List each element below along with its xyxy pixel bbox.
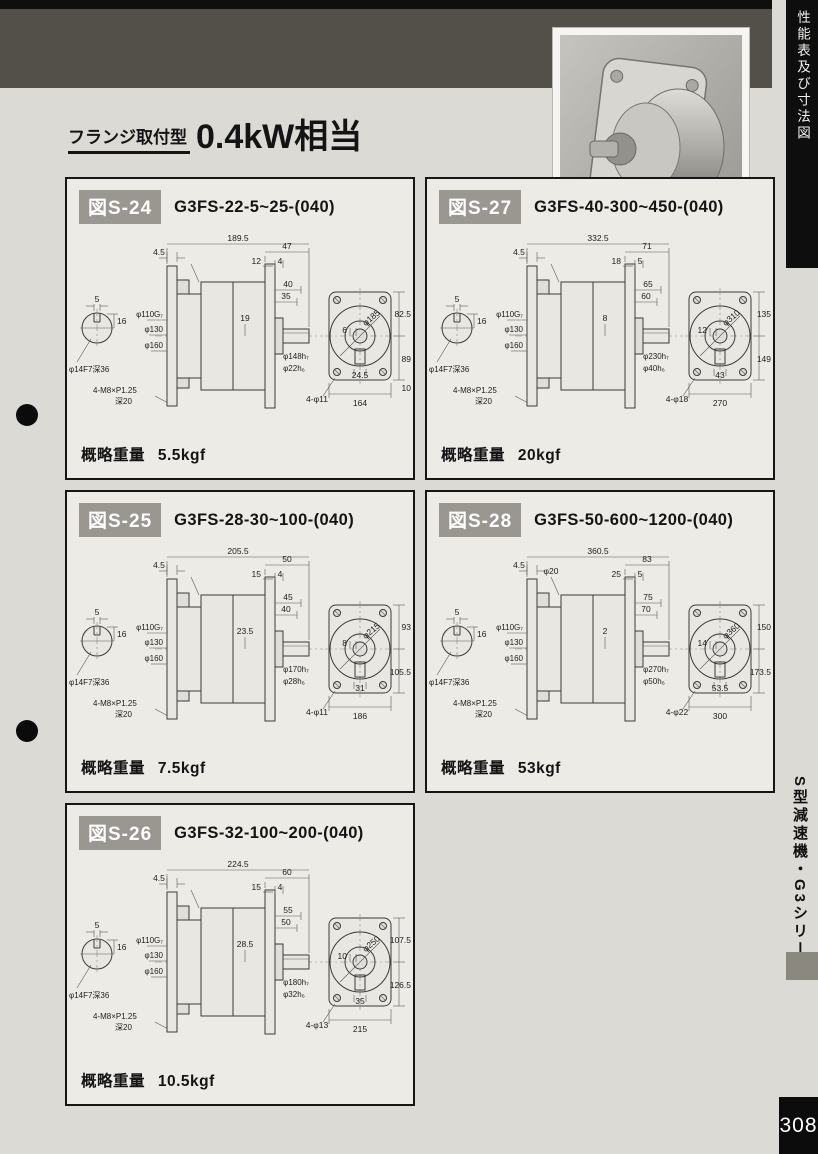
weight-label: 概略重量 bbox=[81, 1073, 145, 1090]
figure-header: 図S-24 G3FS-22-5~25-(040) bbox=[79, 190, 413, 224]
dim-overall-length: 360.5 bbox=[587, 546, 609, 556]
figure-box: 図S-25 G3FS-28-30~100-(040) 5 16 bbox=[65, 490, 415, 793]
dim-top-secondary: 12 bbox=[252, 256, 262, 266]
dim-output-length-1: 55 bbox=[283, 905, 293, 915]
punch-hole bbox=[16, 720, 38, 742]
dim-output-length-1: 40 bbox=[283, 279, 293, 289]
dim-output-spigot-diameter: φ170h₇ bbox=[283, 665, 309, 674]
dim-key-width: 5 bbox=[455, 294, 460, 304]
dim-front-key: 12 bbox=[698, 325, 708, 335]
figure-id-badge: 図S-26 bbox=[79, 816, 161, 850]
dim-key-width: 5 bbox=[455, 607, 460, 617]
side-tab-performance-dimensions: 性能表及び寸法図 bbox=[786, 0, 818, 268]
figure-model-code: G3FS-50-600~1200-(040) bbox=[534, 511, 733, 530]
dim-shaft-bore-note: φ14F7深36 bbox=[429, 365, 470, 374]
dim-bolt-note-depth: 深20 bbox=[115, 1023, 132, 1032]
dim-output-length-1: 75 bbox=[643, 592, 653, 602]
figure-model-code: G3FS-40-300~450-(040) bbox=[534, 198, 724, 217]
dim-bolt-note-depth: 深20 bbox=[475, 397, 492, 406]
dim-front-upper-height: 82.5 bbox=[394, 309, 411, 319]
dim-output-length-2: 40 bbox=[281, 604, 291, 614]
dim-output-spigot-diameter: φ148h₇ bbox=[283, 352, 309, 361]
catalog-page: { "page": { "side_tab": "性能表及び寸法図", "sid… bbox=[0, 0, 818, 1154]
dim-bolt-note: 4-M8×P1.25 bbox=[93, 699, 137, 708]
dim-body-key: 19 bbox=[240, 313, 250, 323]
figure-weight: 概略重量 53kgf bbox=[441, 756, 561, 778]
figure-id-badge: 図S-28 bbox=[439, 503, 521, 537]
dim-front-lower-height: 126.5 bbox=[390, 980, 412, 990]
front-view: φ360 14 53.5 150 173.5 300 4-φ22 bbox=[666, 601, 772, 721]
figure-id-badge: 図S-25 bbox=[79, 503, 161, 537]
dim-output-shaft-diameter: φ32h₆ bbox=[283, 990, 305, 999]
dim-output-length-1: 65 bbox=[643, 279, 653, 289]
dim-front-lower-height: 89 bbox=[402, 354, 412, 364]
dim-bolt-note: 4-M8×P1.25 bbox=[453, 699, 497, 708]
title-mount-type: フランジ取付型 bbox=[68, 123, 190, 154]
front-view: φ250 10 35 107.5 126.5 215 4-φ13 bbox=[306, 914, 412, 1034]
dim-flange-thickness: 4.5 bbox=[513, 560, 525, 570]
dim-key-height: 16 bbox=[477, 629, 487, 639]
dim-flange-thickness: 4.5 bbox=[153, 873, 165, 883]
dim-top-tertiary: 4 bbox=[278, 256, 283, 266]
weight-label: 概略重量 bbox=[81, 760, 145, 777]
dim-output-shaft-diameter: φ50h₆ bbox=[643, 677, 665, 686]
dim-overall-length: 189.5 bbox=[227, 233, 249, 243]
side-view: 205.5 4.5 50 15 4 φ110G₇ φ130 φ160 23.5 … bbox=[136, 546, 323, 721]
dim-flange-outer-diameter: φ160 bbox=[504, 341, 523, 350]
dim-output-shaft-diameter: φ40h₆ bbox=[643, 364, 665, 373]
dim-front-boss: 24.5 bbox=[352, 370, 369, 380]
front-view: φ185 6 24.5 82.5 89 10 164 4-φ11 bbox=[306, 288, 411, 408]
dimension-drawing: 5 16 φ14F7深36 4-M8×P1.25 深20 bbox=[67, 854, 413, 1066]
dim-flange-thickness: 4.5 bbox=[153, 560, 165, 570]
figure-weight: 概略重量 5.5kgf bbox=[81, 443, 206, 465]
dim-flange-outer-diameter: φ160 bbox=[504, 654, 523, 663]
dim-shaft-bore-note: φ14F7深36 bbox=[69, 365, 110, 374]
dim-key-width: 5 bbox=[95, 607, 100, 617]
side-view: 189.5 4.5 47 12 4 φ110G₇ φ130 φ160 19 40… bbox=[136, 233, 323, 408]
dim-shaft-bore-note: φ14F7深36 bbox=[69, 678, 110, 687]
dim-extra-fitting: φ20 bbox=[544, 566, 559, 576]
figure-header: 図S-28 G3FS-50-600~1200-(040) bbox=[439, 503, 773, 537]
figure-header: 図S-26 G3FS-32-100~200-(040) bbox=[79, 816, 413, 850]
dim-shaft-bore-note: φ14F7深36 bbox=[429, 678, 470, 687]
dim-front-lower-height: 149 bbox=[757, 354, 771, 364]
dim-bolt-circle-diameter: φ130 bbox=[144, 951, 163, 960]
dim-front-key: 10 bbox=[338, 951, 348, 961]
punch-hole bbox=[16, 404, 38, 426]
dim-output-length-2: 70 bbox=[641, 604, 651, 614]
dim-mounting-holes: 4-φ13 bbox=[306, 1020, 329, 1030]
dim-output-length-2: 35 bbox=[281, 291, 291, 301]
dim-body-key: 23.5 bbox=[237, 626, 254, 636]
dim-top-tertiary: 5 bbox=[638, 256, 643, 266]
dim-top-secondary: 15 bbox=[252, 569, 262, 579]
dim-front-upper-height: 93 bbox=[402, 622, 412, 632]
dim-front-key: 8 bbox=[342, 638, 347, 648]
dim-bolt-note: 4-M8×P1.25 bbox=[453, 386, 497, 395]
dim-spigot-diameter: φ110G₇ bbox=[496, 310, 523, 319]
dim-body-key: 8 bbox=[603, 313, 608, 323]
dim-front-key: 14 bbox=[698, 638, 708, 648]
figure-weight: 概略重量 20kgf bbox=[441, 443, 561, 465]
dim-output-shaft-diameter: φ28h₆ bbox=[283, 677, 305, 686]
dim-output-section: 60 bbox=[282, 867, 292, 877]
dim-front-key: 6 bbox=[342, 325, 347, 335]
dim-front-upper-height: 135 bbox=[757, 309, 771, 319]
dim-body-key: 28.5 bbox=[237, 939, 254, 949]
figure-id-badge: 図S-24 bbox=[79, 190, 161, 224]
dim-key-height: 16 bbox=[117, 629, 127, 639]
dim-mounting-holes: 4-φ22 bbox=[666, 707, 689, 717]
dim-front-upper-height: 107.5 bbox=[390, 935, 412, 945]
weight-label: 概略重量 bbox=[81, 447, 145, 464]
dim-bolt-note-depth: 深20 bbox=[115, 397, 132, 406]
dim-top-secondary: 15 bbox=[252, 882, 262, 892]
weight-value: 7.5kgf bbox=[158, 760, 206, 777]
dimension-drawing: 5 16 φ14F7深36 4-M8×P1.25 深20 bbox=[427, 541, 773, 753]
dim-front-width: 164 bbox=[353, 398, 367, 408]
side-accent-bar bbox=[786, 952, 818, 980]
weight-value: 53kgf bbox=[518, 760, 561, 777]
title-power-rating: 0.4kW相当 bbox=[196, 120, 362, 154]
dim-spigot-diameter: φ110G₇ bbox=[496, 623, 523, 632]
dim-shaft-bore-note: φ14F7深36 bbox=[69, 991, 110, 1000]
dim-output-spigot-diameter: φ230h₇ bbox=[643, 352, 669, 361]
dim-bolt-note: 4-M8×P1.25 bbox=[93, 386, 137, 395]
front-view: φ310 12 43 135 149 270 4-φ18 bbox=[666, 288, 772, 408]
dim-top-tertiary: 4 bbox=[278, 882, 283, 892]
front-view: φ215 8 31 93 105.5 186 4-φ11 bbox=[306, 601, 411, 721]
dim-bolt-circle-diameter: φ130 bbox=[504, 325, 523, 334]
dim-mounting-holes: 4-φ11 bbox=[306, 707, 328, 717]
dim-key-width: 5 bbox=[95, 920, 100, 930]
side-tab-label: 性能表及び寸法図 bbox=[792, 0, 812, 268]
dim-key-width: 5 bbox=[95, 294, 100, 304]
dim-top-secondary: 25 bbox=[612, 569, 622, 579]
dimension-drawing: 5 16 φ14F7深36 4-M8×P1.25 深20 bbox=[67, 541, 413, 753]
dim-bolt-note-depth: 深20 bbox=[115, 710, 132, 719]
dim-output-section: 71 bbox=[642, 241, 652, 251]
dim-flange-thickness: 4.5 bbox=[153, 247, 165, 257]
dim-front-width: 186 bbox=[353, 711, 367, 721]
weight-label: 概略重量 bbox=[441, 447, 505, 464]
figure-model-code: G3FS-32-100~200-(040) bbox=[174, 824, 364, 843]
side-view: 224.5 4.5 60 15 4 φ110G₇ φ130 φ160 28.5 … bbox=[136, 859, 323, 1034]
dim-spigot-diameter: φ110G₇ bbox=[136, 310, 163, 319]
dim-key-height: 16 bbox=[117, 942, 127, 952]
dim-bolt-circle-diameter: φ130 bbox=[504, 638, 523, 647]
dim-flange-thickness: 4.5 bbox=[513, 247, 525, 257]
dim-spigot-diameter: φ110G₇ bbox=[136, 623, 163, 632]
dimension-drawing: 5 16 φ14F7深36 4-M8×P1.25 深20 bbox=[427, 228, 773, 440]
dim-front-boss: 31 bbox=[355, 683, 365, 693]
dim-output-length-1: 45 bbox=[283, 592, 293, 602]
weight-value: 5.5kgf bbox=[158, 447, 206, 464]
figure-weight: 概略重量 10.5kgf bbox=[81, 1069, 215, 1091]
side-series-label: S型減速機・G3シリーズ bbox=[789, 776, 810, 977]
dim-front-width: 215 bbox=[353, 1024, 367, 1034]
dim-top-tertiary: 5 bbox=[638, 569, 643, 579]
weight-label: 概略重量 bbox=[441, 760, 505, 777]
dim-output-section: 83 bbox=[642, 554, 652, 564]
dim-front-lower-height: 105.5 bbox=[390, 667, 412, 677]
dim-bolt-circle-diameter: φ130 bbox=[144, 325, 163, 334]
figure-id-badge: 図S-27 bbox=[439, 190, 521, 224]
dim-bolt-note-depth: 深20 bbox=[475, 710, 492, 719]
figure-box: 図S-24 G3FS-22-5~25-(040) 5 16 bbox=[65, 177, 415, 480]
dim-output-length-2: 60 bbox=[641, 291, 651, 301]
figure-box: 図S-27 G3FS-40-300~450-(040) 5 16 bbox=[425, 177, 775, 480]
dim-bolt-note: 4-M8×P1.25 bbox=[93, 1012, 137, 1021]
dim-key-height: 16 bbox=[117, 316, 127, 326]
dim-top-secondary: 18 bbox=[612, 256, 622, 266]
dim-mounting-holes: 4-φ18 bbox=[666, 394, 689, 404]
dim-flange-outer-diameter: φ160 bbox=[144, 967, 163, 976]
dim-output-length-2: 50 bbox=[281, 917, 291, 927]
figure-box: 図S-28 G3FS-50-600~1200-(040) 5 16 bbox=[425, 490, 775, 793]
dim-front-offset: 10 bbox=[402, 383, 412, 393]
dim-overall-length: 224.5 bbox=[227, 859, 249, 869]
weight-value: 10.5kgf bbox=[158, 1073, 215, 1090]
dim-bolt-circle-diameter: φ130 bbox=[144, 638, 163, 647]
dim-front-upper-height: 150 bbox=[757, 622, 771, 632]
page-number: 308 bbox=[779, 1097, 818, 1154]
figure-weight: 概略重量 7.5kgf bbox=[81, 756, 206, 778]
dim-top-tertiary: 4 bbox=[278, 569, 283, 579]
dim-body-key: 2 bbox=[603, 626, 608, 636]
figure-model-code: G3FS-22-5~25-(040) bbox=[174, 198, 335, 217]
page-title: フランジ取付型 0.4kW相当 bbox=[68, 120, 362, 154]
dim-front-boss: 35 bbox=[355, 996, 365, 1006]
figure-model-code: G3FS-28-30~100-(040) bbox=[174, 511, 354, 530]
dim-output-shaft-diameter: φ22h₆ bbox=[283, 364, 305, 373]
side-view: 360.5 4.5 83 25 5 φ20 φ110G₇ φ130 φ160 2… bbox=[496, 546, 683, 721]
dim-mounting-holes: 4-φ11 bbox=[306, 394, 328, 404]
dim-overall-length: 332.5 bbox=[587, 233, 609, 243]
dim-key-height: 16 bbox=[477, 316, 487, 326]
dim-output-section: 50 bbox=[282, 554, 292, 564]
dim-output-spigot-diameter: φ180h₇ bbox=[283, 978, 309, 987]
dim-flange-outer-diameter: φ160 bbox=[144, 654, 163, 663]
dim-overall-length: 205.5 bbox=[227, 546, 249, 556]
dim-flange-outer-diameter: φ160 bbox=[144, 341, 163, 350]
dim-output-section: 47 bbox=[282, 241, 292, 251]
dim-front-lower-height: 173.5 bbox=[750, 667, 772, 677]
weight-value: 20kgf bbox=[518, 447, 561, 464]
dim-output-spigot-diameter: φ270h₇ bbox=[643, 665, 669, 674]
dim-front-boss: 53.5 bbox=[712, 683, 729, 693]
dim-front-width: 300 bbox=[713, 711, 727, 721]
dim-spigot-diameter: φ110G₇ bbox=[136, 936, 163, 945]
dim-front-width: 270 bbox=[713, 398, 727, 408]
dimension-drawing: 5 16 φ14F7深36 4-M8×P1.25 深20 bbox=[67, 228, 413, 440]
figure-header: 図S-27 G3FS-40-300~450-(040) bbox=[439, 190, 773, 224]
side-view: 332.5 4.5 71 18 5 φ110G₇ φ130 φ160 8 65 … bbox=[496, 233, 683, 408]
figure-header: 図S-25 G3FS-28-30~100-(040) bbox=[79, 503, 413, 537]
figure-box: 図S-26 G3FS-32-100~200-(040) 5 16 bbox=[65, 803, 415, 1106]
dim-front-boss: 43 bbox=[715, 370, 725, 380]
